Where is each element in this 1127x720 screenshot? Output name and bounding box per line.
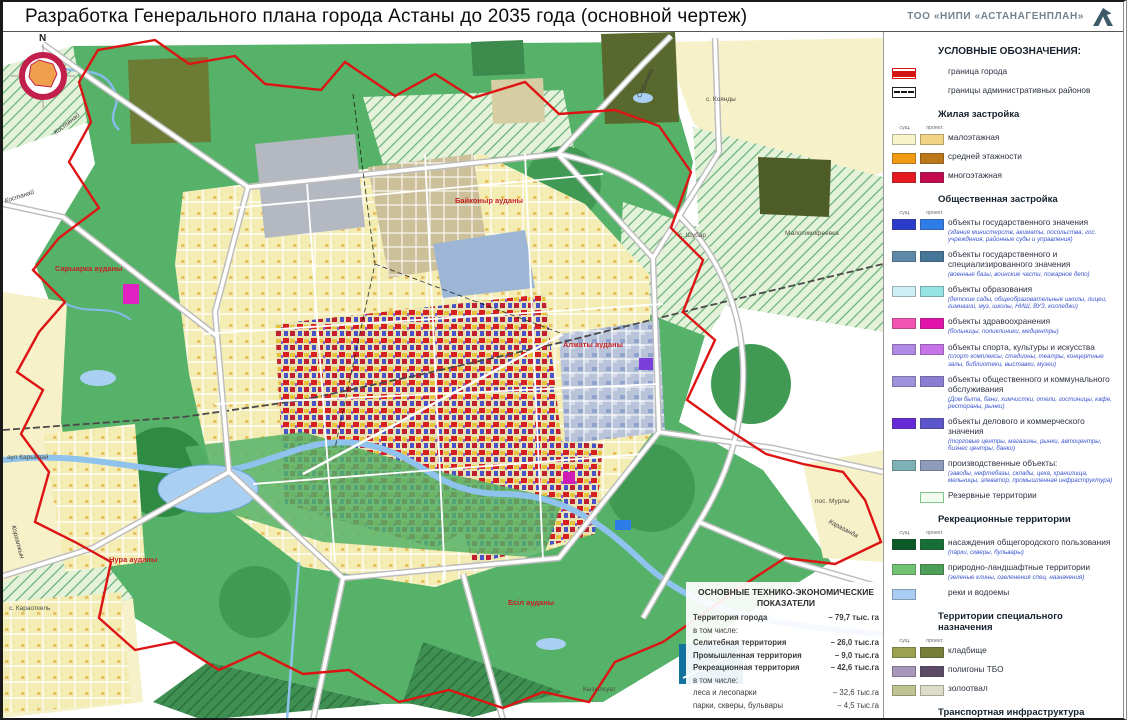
legend-item: многоэтажная bbox=[892, 171, 1120, 183]
legend-item: объекты спорта, культуры и искусства(спо… bbox=[892, 343, 1120, 368]
legend-item-label: кладбище bbox=[948, 646, 1120, 656]
legend-section-special: Территории специального назначения bbox=[938, 611, 1120, 633]
indicator-row: леса и лесопарки– 32,6 тыс.га bbox=[693, 688, 879, 697]
settlement-label-murly: пос. Мурлы bbox=[815, 498, 850, 505]
legend-item: полигоны ТБО bbox=[892, 665, 1120, 677]
legend-item-label: производственные объекты: bbox=[948, 459, 1120, 469]
swatch-existing bbox=[892, 172, 916, 183]
general-plan-sheet: Разработка Генерального плана города Аст… bbox=[0, 0, 1127, 720]
settlement-label-shubar: с. Шубар bbox=[679, 232, 706, 239]
swatch-project bbox=[920, 376, 944, 387]
company-brand: ТОО «НИПИ «АСТАНАГЕНПЛАН» bbox=[907, 7, 1115, 27]
legend-item-label: объекты спорта, культуры и искусства bbox=[948, 343, 1120, 353]
legend-section-recreation: Рекреационные территории bbox=[938, 514, 1120, 525]
legend-item-sub: (парки, скверы, бульвары) bbox=[948, 549, 1120, 556]
company-name: ТОО «НИПИ «АСТАНАГЕНПЛАН» bbox=[907, 11, 1084, 22]
swatch-project bbox=[920, 153, 944, 164]
legend-item: насаждения общегородского пользования(па… bbox=[892, 538, 1120, 556]
legend-item-sub: (здания министерств, акиматы, посольства… bbox=[948, 229, 1120, 243]
swatch-existing bbox=[892, 251, 916, 262]
swatch-project bbox=[920, 251, 944, 262]
swatch-project bbox=[920, 219, 944, 230]
legend-item: объекты образования(детские сады, общеоб… bbox=[892, 285, 1120, 310]
legend-section-residential: Жилая застройка bbox=[938, 109, 1120, 120]
legend-item-label: границы административных районов bbox=[948, 86, 1120, 96]
swatch-project bbox=[920, 318, 944, 329]
indicator-row: Селитебная территория– 26,0 тыс.га bbox=[693, 638, 879, 647]
legend-item-sub: (зеленые клины, озеленения спец. назначе… bbox=[948, 574, 1120, 581]
legend-item-label: объекты образования bbox=[948, 285, 1120, 295]
district-label-saryarka: Сарыарка ауданы bbox=[55, 264, 122, 273]
legend-item: объекты государственного значения(здания… bbox=[892, 218, 1120, 243]
legend-title: УСЛОВНЫЕ ОБОЗНАЧЕНИЯ: bbox=[938, 46, 1120, 57]
settlement-label-malotimofeevka: Малотимофеевка bbox=[785, 230, 839, 237]
legend-item: объекты государственного и специализиров… bbox=[892, 250, 1120, 278]
district-label-baikonyr: Байконыр ауданы bbox=[455, 196, 523, 205]
legend-panel: УСЛОВНЫЕ ОБОЗНАЧЕНИЯ: граница города гра… bbox=[883, 32, 1126, 720]
swatch-project bbox=[920, 647, 944, 658]
legend-item-sub: (больницы, поликлиники, медцентры) bbox=[948, 328, 1120, 335]
district-label-nura: Нура ауданы bbox=[109, 555, 157, 564]
settlement-label-koyandy: с. Коянды bbox=[706, 96, 736, 103]
legend-item-label: средней этажности bbox=[948, 152, 1120, 162]
compass-north-label: N bbox=[39, 33, 46, 44]
city-map: N Сарыарка ауданы Байконыр ауданы Алматы… bbox=[3, 32, 883, 720]
legend-item-label: объекты здравоохранения bbox=[948, 317, 1120, 327]
legend-item-label: объекты государственного и специализиров… bbox=[948, 250, 1120, 270]
legend-item-sub: (военные базы, воинские части, пожарное … bbox=[948, 271, 1120, 278]
legend-item: производственные объекты:(заводы, нефтеб… bbox=[892, 459, 1120, 484]
swatch-project bbox=[920, 685, 944, 696]
legend-item: кладбище bbox=[892, 646, 1120, 658]
legend-item-label: реки и водоемы bbox=[948, 588, 1120, 598]
legend-item-sub: (детские сады, общеобразовательные школы… bbox=[948, 296, 1120, 310]
swatch-existing bbox=[892, 344, 916, 355]
swatch-existing bbox=[892, 318, 916, 329]
legend-item-label: насаждения общегородского пользования bbox=[948, 538, 1120, 548]
legend-item: средней этажности bbox=[892, 152, 1120, 164]
legend-item-label: объекты общественного и коммунального об… bbox=[948, 375, 1120, 395]
swatch-project bbox=[920, 134, 944, 145]
legend-item-label: Резервные территории bbox=[948, 491, 1120, 501]
swatch-existing bbox=[892, 219, 916, 230]
legend-item-label: полигоны ТБО bbox=[948, 665, 1120, 675]
swatch-existing bbox=[892, 666, 916, 677]
legend-item: объекты общественного и коммунального об… bbox=[892, 375, 1120, 410]
legend-section-transport: Транспортная инфраструктура bbox=[938, 707, 1120, 718]
indicator-row: в том числе: bbox=[693, 676, 879, 685]
legend-column-headers: сущ.проект. bbox=[892, 638, 1120, 644]
district-label-esil: Есіл ауданы bbox=[508, 598, 554, 607]
settlement-label-kyzylsuat: Кызылсуат bbox=[583, 686, 616, 693]
legend-item-sub: (спорт комплексы, стадионы, театры, конц… bbox=[948, 353, 1120, 367]
legend-item-label: золоотвал bbox=[948, 684, 1120, 694]
legend-column-headers: сущ.проект. bbox=[892, 530, 1120, 536]
legend-item: природно-ландшафтные территории(зеленые … bbox=[892, 563, 1120, 581]
indicator-row: Рекреационная территория– 42,6 тыс.га bbox=[693, 663, 879, 672]
swatch-existing bbox=[892, 460, 916, 471]
legend-item-sub: (заводы, нефтебазы, склады, цеха, хранил… bbox=[948, 470, 1120, 484]
legend-item-label: объекты делового и коммерческого значени… bbox=[948, 417, 1120, 437]
swatch-existing bbox=[892, 564, 916, 575]
legend-item-label: объекты государственного значения bbox=[948, 218, 1120, 228]
legend-item-sub: (торговые центры, магазины, рынки, автоц… bbox=[948, 438, 1120, 452]
swatch-project bbox=[920, 172, 944, 183]
indicator-row: парки, скверы, бульвары– 4,5 тыс.га bbox=[693, 701, 879, 710]
legend-item-label: малоэтажная bbox=[948, 133, 1120, 143]
swatch-existing bbox=[892, 134, 916, 145]
legend-section-public: Общественная застройка bbox=[938, 194, 1120, 205]
indicators-title: ОСНОВНЫЕ ТЕХНИКО-ЭКОНОМИЧЕСКИЕ ПОКАЗАТЕЛ… bbox=[693, 587, 879, 608]
settlement-label-karaotkel: с. Караоткель bbox=[9, 605, 50, 612]
title-bar: Разработка Генерального плана города Аст… bbox=[3, 2, 1123, 32]
swatch-project bbox=[920, 286, 944, 297]
settlement-label-karykpai: аул Карыкпай bbox=[7, 454, 49, 461]
swatch-existing bbox=[892, 153, 916, 164]
legend-column-headers: сущ.проект. bbox=[892, 125, 1120, 131]
indicator-row: Промышленная территория– 9,0 тыс.га bbox=[693, 651, 879, 660]
legend-item-admin-boundaries: границы административных районов bbox=[892, 86, 1120, 98]
swatch-project bbox=[920, 460, 944, 471]
swatch-project bbox=[920, 344, 944, 355]
swatch-project bbox=[920, 564, 944, 575]
swatch-project bbox=[920, 539, 944, 550]
swatch-existing bbox=[892, 376, 916, 387]
legend-item: малоэтажная bbox=[892, 133, 1120, 145]
page-title: Разработка Генерального плана города Аст… bbox=[25, 6, 747, 28]
swatch-existing bbox=[892, 685, 916, 696]
legend-item: объекты здравоохранения(больницы, поликл… bbox=[892, 317, 1120, 335]
legend-item-label: природно-ландшафтные территории bbox=[948, 563, 1120, 573]
legend-item-sub: (Дом быта, бани, химчистки, отели, гости… bbox=[948, 396, 1120, 410]
swatch-existing bbox=[892, 647, 916, 658]
swatch-project bbox=[920, 666, 944, 677]
indicator-row: Территория города– 79,7 тыс. га bbox=[693, 613, 879, 622]
legend-item: золоотвал bbox=[892, 684, 1120, 696]
swatch-project bbox=[920, 418, 944, 429]
swatch-existing bbox=[892, 286, 916, 297]
legend-item-label: граница города bbox=[948, 67, 1120, 77]
city-boundary-swatch bbox=[892, 68, 916, 79]
indicator-row: в том числе: bbox=[693, 626, 879, 635]
swatch-reserve bbox=[920, 492, 944, 503]
legend-column-headers: сущ.проект. bbox=[892, 210, 1120, 216]
swatch-existing bbox=[892, 539, 916, 550]
swatch-existing bbox=[892, 418, 916, 429]
legend-item-city-boundary: граница города bbox=[892, 67, 1120, 79]
legend-item-label: многоэтажная bbox=[948, 171, 1120, 181]
swatch-water bbox=[892, 589, 916, 600]
district-label-almaty: Алматы ауданы bbox=[563, 340, 623, 349]
admin-boundary-swatch bbox=[892, 87, 916, 98]
indicators-panel: ОСНОВНЫЕ ТЕХНИКО-ЭКОНОМИЧЕСКИЕ ПОКАЗАТЕЛ… bbox=[686, 582, 883, 717]
legend-item-water: реки и водоемы bbox=[892, 588, 1120, 600]
legend-item: объекты делового и коммерческого значени… bbox=[892, 417, 1120, 452]
company-logo bbox=[1091, 7, 1115, 27]
legend-item-reserve: Резервные территории bbox=[892, 491, 1120, 503]
